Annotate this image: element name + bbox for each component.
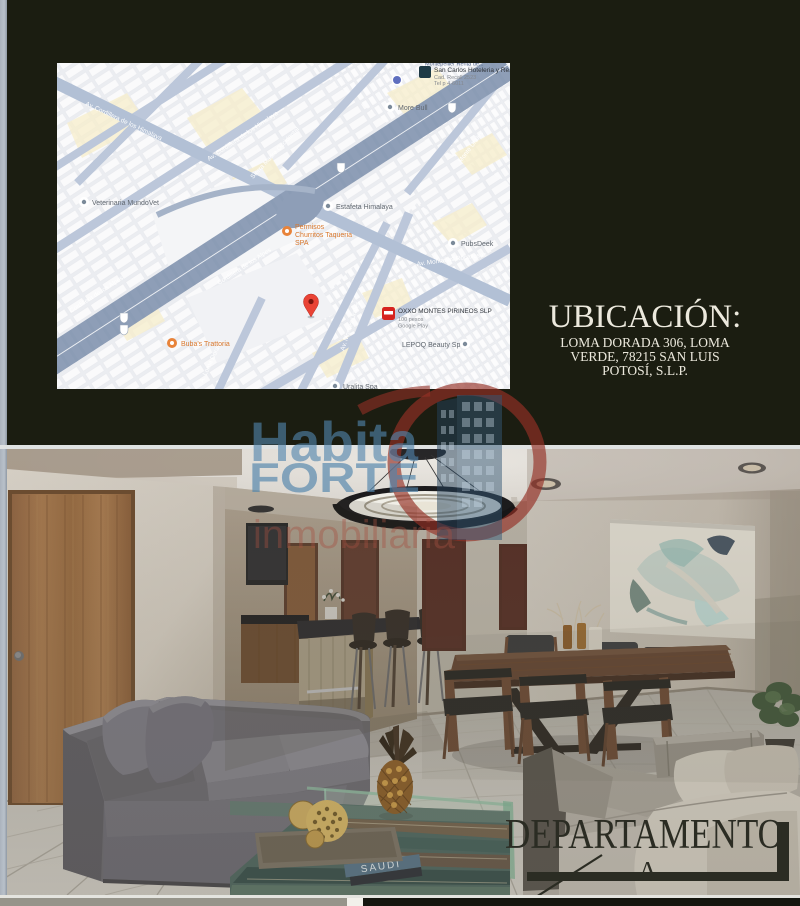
svg-text:Tel p 4-6011: Tel p 4-6011 <box>434 81 464 87</box>
svg-text:Uralita Spa: Uralita Spa <box>343 384 378 389</box>
svg-text:Google Play: Google Play <box>398 324 428 330</box>
svg-text:LEPOQ Beauty Spa: LEPOQ Beauty Spa <box>402 342 464 349</box>
svg-text:Veterinaria MundoVet: Veterinaria MundoVet <box>92 200 159 207</box>
svg-text:SPA: SPA <box>295 240 309 247</box>
svg-text:DEPARTAMENTO: DEPARTAMENTO <box>505 812 783 858</box>
svg-text:Buba's Trattoria: Buba's Trattoria <box>181 341 230 348</box>
svg-text:Montepellier Renta de...: Montepellier Renta de... <box>425 63 484 68</box>
svg-text:Estafeta Himalaya: Estafeta Himalaya <box>336 204 393 211</box>
svg-text:San Carlos Hoteleria y Re...: San Carlos Hoteleria y Re... <box>434 67 510 74</box>
svg-text:Churritos Taqueria: Churritos Taqueria <box>295 232 352 239</box>
svg-text:A: A <box>638 856 658 886</box>
svg-text:More Bull: More Bull <box>398 105 428 112</box>
svg-text:Permisos: Permisos <box>295 224 325 231</box>
svg-text:PubsDeek: PubsDeek <box>461 241 494 248</box>
svg-text:100 pesos: 100 pesos <box>398 317 424 323</box>
